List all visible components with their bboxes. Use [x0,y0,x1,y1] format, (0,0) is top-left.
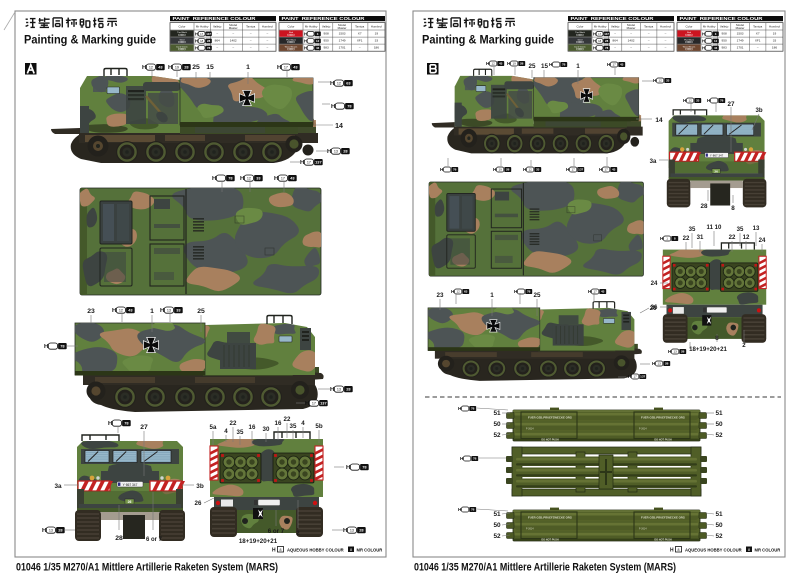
svg-text:13: 13 [334,150,338,154]
svg-text:1749: 1749 [737,39,744,43]
svg-text:26: 26 [650,305,657,312]
svg-text:01046 1/35 M270/A1 Mittlere Ar: 01046 1/35 M270/A1 Mittlere Artillerie R… [414,562,676,574]
svg-text:864: 864 [215,39,220,43]
svg-text:78: 78 [527,290,531,294]
svg-text:Color: Color [288,25,295,29]
svg-text:78: 78 [473,457,477,461]
svg-text:19: 19 [175,66,179,70]
svg-text:43: 43 [316,46,320,50]
svg-text:12: 12 [688,99,692,103]
svg-text:52: 52 [715,432,723,439]
svg-text:H: H [168,65,172,71]
svg-text:Humbrol: Humbrol [660,25,671,29]
svg-text:Vallejo: Vallejo [322,25,331,29]
svg-text:186: 186 [374,46,379,50]
svg-text:17: 17 [200,32,204,36]
svg-text:–: – [359,46,361,50]
svg-text:13: 13 [337,388,341,392]
svg-text:H: H [330,81,334,87]
svg-text:H: H [670,548,674,554]
svg-text:3b: 3b [196,483,204,490]
svg-text:28: 28 [207,39,211,43]
svg-text:33: 33 [536,168,540,172]
svg-text:–: – [648,32,650,36]
svg-text:12: 12 [456,290,460,294]
svg-text:PAINT REFERENCE COLOUR: PAINT REFERENCE COLOUR [282,16,366,21]
svg-text:Color: Color [179,25,186,29]
svg-text:H: H [240,176,244,182]
svg-text:–: – [665,39,667,43]
svg-text:33: 33 [696,99,700,103]
svg-text:8: 8 [731,205,735,212]
svg-text:H: H [108,421,112,427]
svg-text:137: 137 [640,375,645,379]
svg-text:33: 33 [666,79,670,83]
svg-text:AQUEOUS HOBBY COLOUR: AQUEOUS HOBBY COLOUR [287,548,344,553]
svg-text:H: H [300,160,304,166]
svg-text:1: 1 [490,292,494,299]
svg-text:13: 13 [167,309,171,313]
svg-text:950: 950 [324,39,329,43]
svg-text:12: 12 [714,39,718,43]
svg-text:H: H [330,387,334,393]
svg-text:137: 137 [604,32,609,36]
svg-text:–: – [665,32,667,36]
svg-text:H: H [702,46,705,51]
svg-text:–: – [757,46,759,50]
svg-text:H: H [702,38,705,43]
svg-text:Humbrol: Humbrol [371,25,382,29]
svg-text:Master: Master [338,26,347,30]
svg-text:19: 19 [512,62,516,66]
svg-text:27: 27 [140,424,148,431]
svg-text:19: 19 [498,168,502,172]
svg-text:78: 78 [453,168,457,172]
svg-text:13: 13 [350,529,354,533]
svg-text:1701: 1701 [737,46,744,50]
svg-text:50: 50 [493,522,501,529]
svg-text:28: 28 [605,39,609,43]
svg-text:14: 14 [335,123,343,130]
svg-text:31: 31 [697,234,704,241]
svg-text:78: 78 [471,407,475,411]
svg-text:30: 30 [263,426,270,433]
svg-text:43: 43 [612,168,616,172]
svg-text:19: 19 [375,32,379,36]
svg-text:1749: 1749 [339,39,346,43]
svg-text:12: 12 [528,168,532,172]
svg-text:13: 13 [753,225,760,232]
svg-text:43: 43 [714,46,718,50]
svg-text:51: 51 [715,410,723,417]
svg-text:33: 33 [773,39,777,43]
svg-text:12: 12 [316,39,320,43]
svg-text:11 10: 11 10 [707,224,723,231]
svg-text:X7: X7 [358,32,362,36]
svg-text:63: 63 [464,290,468,294]
svg-text:14: 14 [655,117,663,124]
svg-text:8: 8 [350,548,352,552]
svg-text:Painting & Marking guide: Painting & Marking guide [24,33,156,47]
svg-text:1: 1 [576,63,580,70]
svg-text:Mr Hobby: Mr Hobby [703,25,716,29]
svg-text:1503: 1503 [339,32,346,36]
svg-text:AQUEOUS HOBBY COLOUR: AQUEOUS HOBBY COLOUR [685,548,742,553]
svg-text:4: 4 [301,420,305,427]
svg-text:Steel: Steel [578,38,584,41]
svg-text:950: 950 [722,39,727,43]
svg-text:12: 12 [247,177,251,181]
svg-text:H: H [112,308,116,314]
svg-text:H: H [212,176,216,182]
svg-text:6 or 7: 6 or 7 [146,537,163,543]
svg-text:Flat Black: Flat Black [684,38,695,41]
svg-text:H: H [44,344,48,350]
svg-text:18: 18 [200,39,204,43]
svg-text:50: 50 [493,421,501,428]
svg-text:Master: Master [736,26,745,30]
svg-text:–: – [614,46,616,50]
svg-text:24: 24 [759,237,766,244]
svg-text:52: 52 [493,533,501,540]
svg-text:3a: 3a [650,158,657,165]
svg-text:–: – [232,32,234,36]
svg-text:Vallejo: Vallejo [611,25,620,29]
svg-text:H: H [593,46,596,51]
svg-text:Wood Brown: Wood Brown [683,45,696,48]
svg-text:Color: Color [577,25,584,29]
svg-text:27: 27 [727,101,735,108]
svg-text:MR COLOUR: MR COLOUR [357,548,383,553]
svg-text:35: 35 [737,226,744,233]
svg-text:26: 26 [195,500,202,507]
svg-text:52: 52 [715,533,723,540]
svg-text:35: 35 [689,226,696,233]
svg-text:H: H [272,548,276,554]
svg-text:Humbrol: Humbrol [769,25,780,29]
svg-text:Steel: Steel [180,38,185,41]
svg-text:17: 17 [598,32,602,36]
svg-text:–: – [250,39,252,43]
svg-text:PAINT REFERENCE COLOUR: PAINT REFERENCE COLOUR [680,16,764,21]
svg-text:12: 12 [491,62,495,66]
svg-text:H: H [305,401,309,407]
svg-text:12: 12 [149,66,153,70]
svg-text:Vallejo: Vallejo [213,25,222,29]
svg-text:35: 35 [290,423,297,430]
svg-text:983: 983 [324,46,329,50]
svg-text:983: 983 [722,46,727,50]
svg-text:XF1: XF1 [755,39,761,43]
svg-text:6 or 7: 6 or 7 [268,528,285,535]
svg-text:H: H [195,46,198,51]
svg-text:1701: 1701 [339,46,346,50]
svg-text:25: 25 [528,63,536,70]
svg-text:1402: 1402 [628,39,635,43]
svg-text:28: 28 [681,350,685,354]
svg-text:137: 137 [320,401,327,406]
svg-text:22: 22 [230,420,237,427]
svg-text:8: 8 [678,548,680,552]
svg-text:Tamiya: Tamiya [644,25,654,29]
svg-text:H: H [327,149,331,155]
svg-text:23: 23 [87,308,95,315]
svg-text:–: – [665,46,667,50]
svg-text:43: 43 [499,62,503,66]
svg-text:18+19+20+21: 18+19+20+21 [689,346,727,353]
svg-text:864: 864 [613,39,618,43]
svg-text:01046 1/35 M270/A1 Mittlere Ar: 01046 1/35 M270/A1 Mittlere Artillerie R… [16,562,278,574]
svg-text:16: 16 [275,420,282,427]
svg-text:25: 25 [197,308,205,315]
svg-text:Vallejo: Vallejo [720,25,729,29]
svg-text:17: 17 [612,63,616,67]
svg-text:137: 137 [315,160,322,165]
svg-text:15: 15 [206,64,214,71]
svg-text:H: H [702,31,705,36]
svg-text:H: H [160,308,164,314]
svg-text:H: H [142,65,146,71]
svg-text:12: 12 [119,309,123,313]
svg-text:28: 28 [506,168,510,172]
svg-text:28: 28 [520,62,524,66]
svg-text:H: H [304,38,307,43]
svg-text:22: 22 [284,416,291,423]
svg-text:50: 50 [715,522,723,529]
svg-text:–: – [232,46,234,50]
svg-text:13: 13 [673,350,677,354]
svg-text:–: – [630,46,632,50]
svg-text:Dark Green: Dark Green [176,45,188,48]
svg-text:78: 78 [471,508,475,512]
svg-text:17: 17 [312,402,316,406]
svg-text:Master: Master [229,26,238,30]
svg-text:Tire Black: Tire Black [575,31,586,34]
svg-text:18+19+20+21: 18+19+20+21 [239,538,278,545]
svg-text:PAINT REFERENCE COLOUR: PAINT REFERENCE COLOUR [173,16,257,21]
svg-text:28: 28 [115,535,123,542]
svg-text:H: H [195,31,198,36]
svg-text:Master: Master [627,26,636,30]
svg-text:78: 78 [207,46,211,50]
svg-text:H: H [304,31,307,36]
svg-text:51: 51 [493,410,501,417]
svg-text:17: 17 [633,375,637,379]
svg-text:–: – [216,46,218,50]
svg-text:3a: 3a [54,483,62,490]
svg-text:28: 28 [700,203,708,210]
svg-text:22: 22 [683,235,690,242]
svg-text:908: 908 [324,32,329,36]
svg-text:13: 13 [657,362,661,366]
svg-text:MR COLOUR: MR COLOUR [755,548,781,553]
svg-text:33: 33 [375,39,379,43]
svg-text:H: H [277,65,281,71]
svg-text:H: H [343,528,347,534]
svg-text:Tire Black: Tire Black [177,31,188,34]
svg-text:22: 22 [729,234,736,241]
svg-text:8: 8 [748,548,750,552]
svg-text:24: 24 [651,280,658,287]
svg-text:5a: 5a [210,424,217,431]
svg-text:5b: 5b [315,423,322,430]
svg-text:43: 43 [601,290,605,294]
svg-text:51: 51 [715,511,723,518]
svg-text:3b: 3b [755,107,762,114]
svg-text:H: H [42,528,46,534]
svg-text:Mr Hobby: Mr Hobby [594,25,607,29]
svg-text:78: 78 [605,46,609,50]
svg-text:–: – [250,32,252,36]
svg-text:H: H [331,104,335,110]
svg-text:Painting & Marking guide: Painting & Marking guide [422,33,554,47]
svg-text:51: 51 [493,511,501,518]
svg-text:78: 78 [720,99,724,103]
svg-text:19: 19 [773,32,777,36]
svg-text:–: – [648,46,650,50]
svg-text:1: 1 [246,64,250,71]
svg-text:17: 17 [571,168,575,172]
svg-text:–: – [267,39,269,43]
svg-text:17: 17 [604,168,608,172]
svg-text:PAINT REFERENCE COLOUR: PAINT REFERENCE COLOUR [571,16,655,21]
svg-text:Mr Hobby: Mr Hobby [196,25,209,29]
svg-text:Tamiya: Tamiya [355,25,365,29]
svg-text:50: 50 [715,421,723,428]
svg-text:25: 25 [192,64,200,71]
svg-text:12: 12 [337,82,341,86]
svg-text:H: H [195,38,198,43]
svg-text:H: H [304,46,307,51]
svg-text:1402: 1402 [230,39,237,43]
svg-text:17: 17 [284,66,288,70]
svg-text:–: – [630,32,632,36]
svg-text:908: 908 [722,32,727,36]
svg-text:28: 28 [665,362,669,366]
svg-text:43: 43 [620,63,624,67]
svg-text:35: 35 [237,429,244,436]
svg-text:–: – [267,46,269,50]
svg-text:–: – [614,32,616,36]
svg-text:H: H [274,176,278,182]
svg-text:Mr Hobby: Mr Hobby [305,25,318,29]
svg-text:137: 137 [578,168,583,172]
svg-text:17: 17 [307,161,311,165]
svg-text:52: 52 [493,432,501,439]
svg-text:13: 13 [49,529,53,533]
svg-text:8: 8 [280,548,282,552]
svg-text:1503: 1503 [737,32,744,36]
svg-text:Tamiya: Tamiya [246,25,256,29]
svg-text:23: 23 [436,292,444,299]
svg-text:137: 137 [206,32,211,36]
svg-text:H: H [593,38,596,43]
svg-text:Wood Brown: Wood Brown [285,45,298,48]
svg-text:XF1: XF1 [357,39,363,43]
svg-text:Humbrol: Humbrol [262,25,273,29]
svg-text:4: 4 [224,428,228,435]
svg-text:Tamiya: Tamiya [753,25,763,29]
svg-text:186: 186 [772,46,777,50]
svg-text:25: 25 [533,292,541,299]
svg-text:15: 15 [541,63,549,70]
svg-text:18: 18 [598,39,602,43]
svg-text:12: 12 [658,79,662,83]
svg-text:X7: X7 [756,32,760,36]
svg-text:H: H [346,465,350,471]
svg-text:Flat Black: Flat Black [286,38,297,41]
svg-text:2: 2 [296,530,300,537]
svg-text:17: 17 [281,177,285,181]
svg-text:78: 78 [562,63,566,67]
svg-text:Color: Color [686,25,693,29]
svg-text:–: – [250,46,252,50]
svg-text:12: 12 [743,234,750,241]
svg-text:16: 16 [249,424,256,431]
svg-text:–: – [648,39,650,43]
svg-text:Dark Green: Dark Green [574,45,586,48]
svg-text:–: – [267,32,269,36]
svg-text:H: H [593,31,596,36]
svg-text:8: 8 [674,237,676,241]
svg-text:1: 1 [150,308,154,315]
svg-text:–: – [216,32,218,36]
